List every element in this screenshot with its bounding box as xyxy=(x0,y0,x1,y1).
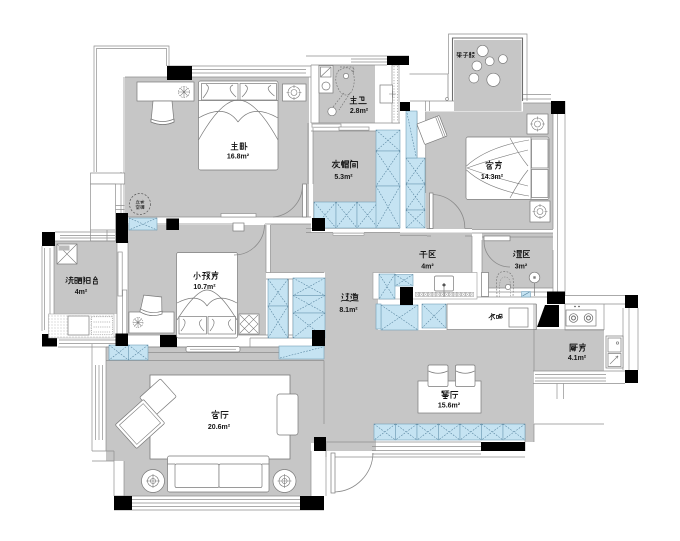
svg-text:10.7m²: 10.7m² xyxy=(193,284,216,291)
svg-text:14.3m²: 14.3m² xyxy=(481,174,504,181)
svg-text:4.1m²: 4.1m² xyxy=(568,355,587,362)
svg-text:2.8m²: 2.8m² xyxy=(350,108,369,115)
svg-text:5.3m²: 5.3m² xyxy=(334,174,353,181)
svg-text:15.6m²: 15.6m² xyxy=(438,403,461,410)
svg-text:8.1m²: 8.1m² xyxy=(339,307,358,314)
svg-text:4m²: 4m² xyxy=(75,289,88,296)
svg-text:4m²: 4m² xyxy=(421,264,434,271)
svg-text:16.8m²: 16.8m² xyxy=(227,154,250,161)
svg-text:3m²: 3m² xyxy=(515,264,528,271)
svg-text:20.6m²: 20.6m² xyxy=(208,424,231,431)
